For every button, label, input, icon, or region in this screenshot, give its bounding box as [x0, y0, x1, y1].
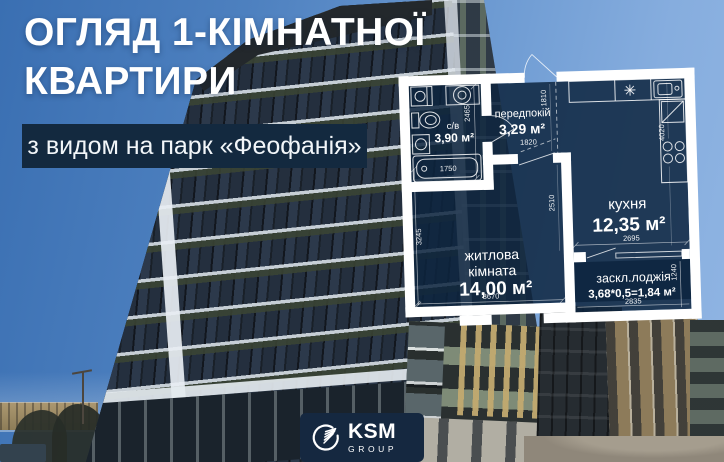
title-line2: КВАРТИРИ: [24, 57, 426, 106]
waste-bins: [0, 444, 46, 462]
loggia-name: заскл.лоджія: [596, 269, 671, 285]
dim-kitchen-width: 2695: [623, 233, 640, 242]
dim-kitchen-depth: 4020: [657, 124, 666, 141]
title-line1: ОГЛЯД 1-КІМНАТНОЇ: [24, 8, 426, 57]
bathroom-area: 3,90 м²: [434, 130, 474, 145]
ground-dirt: [524, 436, 724, 462]
dim-living-depth: 3245: [414, 228, 423, 245]
dim-loggia-width: 2835: [625, 296, 642, 305]
developer-logo-card: KSM GROUP: [300, 413, 424, 462]
balconies: [405, 325, 445, 422]
tan-slats: [457, 323, 549, 419]
dim-hallway-width: 1820: [520, 137, 537, 146]
logo-group: GROUP: [348, 444, 397, 454]
living-name-line1: житлова: [464, 246, 519, 264]
kitchen-name: кухня: [608, 195, 647, 213]
dim-hallway-depth: 1810: [539, 90, 548, 107]
page-title: ОГЛЯД 1-КІМНАТНОЇ КВАРТИРИ: [24, 8, 426, 106]
ksm-logo-icon: [311, 423, 341, 453]
logo-brand: KSM: [348, 421, 397, 442]
promo-image: ОГЛЯД 1-КІМНАТНОЇ КВАРТИРИ з видом на па…: [0, 0, 724, 462]
subtitle-banner: з видом на парк «Феофанія»: [22, 124, 367, 168]
dim-living-kitchen-depth: 2510: [547, 194, 556, 211]
living-name-line2: кімната: [468, 262, 517, 279]
dim-living-width: 3670: [483, 292, 500, 301]
floor-plan: с/в 3,90 м² 1750 2465 передпокій 3,29 м²…: [398, 52, 702, 337]
logo-text: KSM GROUP: [348, 421, 397, 454]
dim-loggia-depth: 1240: [669, 264, 678, 281]
dim-bathtub: 1750: [440, 164, 457, 173]
subtitle-text: з видом на парк «Феофанія»: [27, 132, 361, 161]
crane: [82, 372, 84, 424]
dim-bathroom-depth: 2465: [462, 105, 471, 122]
hallway-name: передпокій: [494, 107, 550, 121]
hallway-area: 3,29 м²: [499, 120, 546, 137]
